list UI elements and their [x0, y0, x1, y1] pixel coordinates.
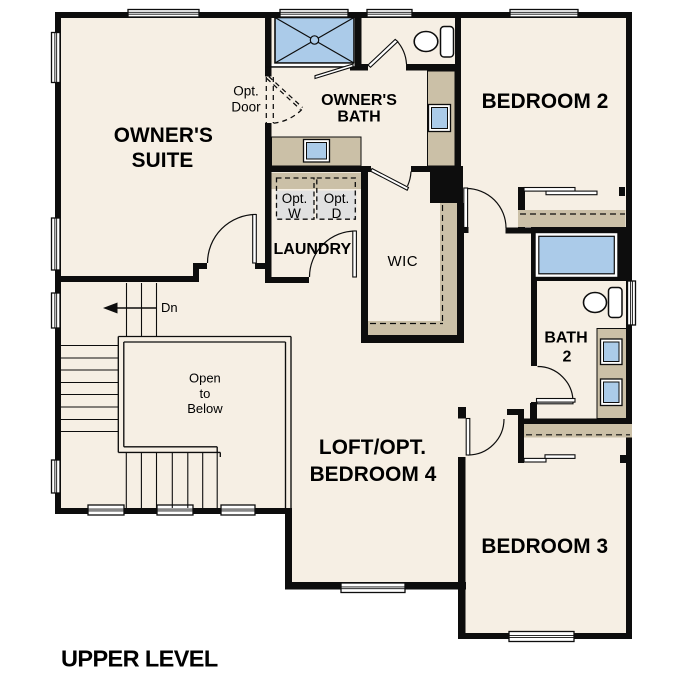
- svg-text:2: 2: [563, 349, 572, 366]
- svg-text:OWNER'S: OWNER'S: [321, 92, 397, 109]
- svg-text:Open: Open: [189, 371, 221, 386]
- svg-text:Opt.: Opt.: [282, 191, 308, 206]
- svg-text:to: to: [199, 386, 210, 401]
- svg-text:Dn: Dn: [161, 300, 178, 315]
- svg-text:UPPER LEVEL: UPPER LEVEL: [61, 646, 218, 672]
- svg-text:Opt.: Opt.: [233, 84, 259, 99]
- svg-text:BEDROOM 3: BEDROOM 3: [481, 535, 608, 558]
- svg-text:Door: Door: [231, 100, 261, 115]
- svg-text:SUITE: SUITE: [132, 149, 194, 172]
- svg-text:Below: Below: [187, 401, 223, 416]
- svg-text:BATH: BATH: [544, 329, 587, 346]
- svg-text:LAUNDRY: LAUNDRY: [273, 241, 351, 258]
- svg-text:BATH: BATH: [337, 108, 380, 125]
- svg-text:Opt.: Opt.: [324, 191, 350, 206]
- svg-text:W: W: [288, 206, 301, 221]
- svg-text:BEDROOM 4: BEDROOM 4: [310, 463, 437, 486]
- svg-text:WIC: WIC: [387, 253, 418, 270]
- svg-text:LOFT/OPT.: LOFT/OPT.: [319, 436, 426, 459]
- svg-text:D: D: [332, 206, 342, 221]
- svg-text:OWNER'S: OWNER'S: [114, 124, 213, 147]
- svg-text:BEDROOM 2: BEDROOM 2: [482, 90, 609, 113]
